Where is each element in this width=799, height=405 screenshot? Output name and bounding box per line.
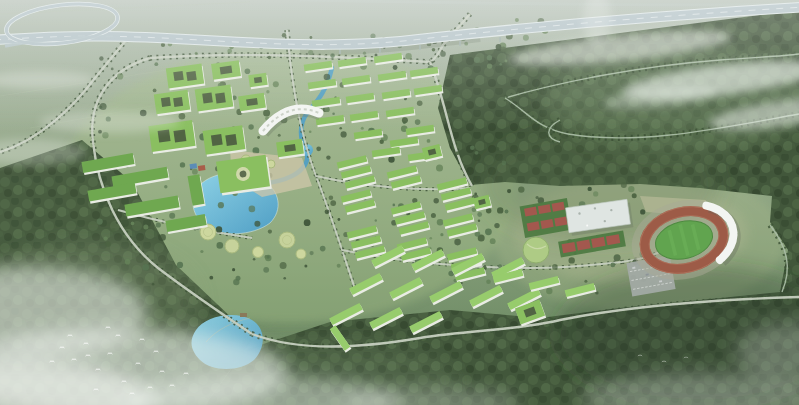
round-courtyard-building xyxy=(216,154,272,195)
aerial-rendering: Aerial perspective rendering of a green-… xyxy=(0,0,799,405)
pond-pavilion xyxy=(240,313,247,317)
rendering-stage: Aerial perspective rendering of a green-… xyxy=(0,0,799,405)
circular-lawn xyxy=(523,237,549,263)
